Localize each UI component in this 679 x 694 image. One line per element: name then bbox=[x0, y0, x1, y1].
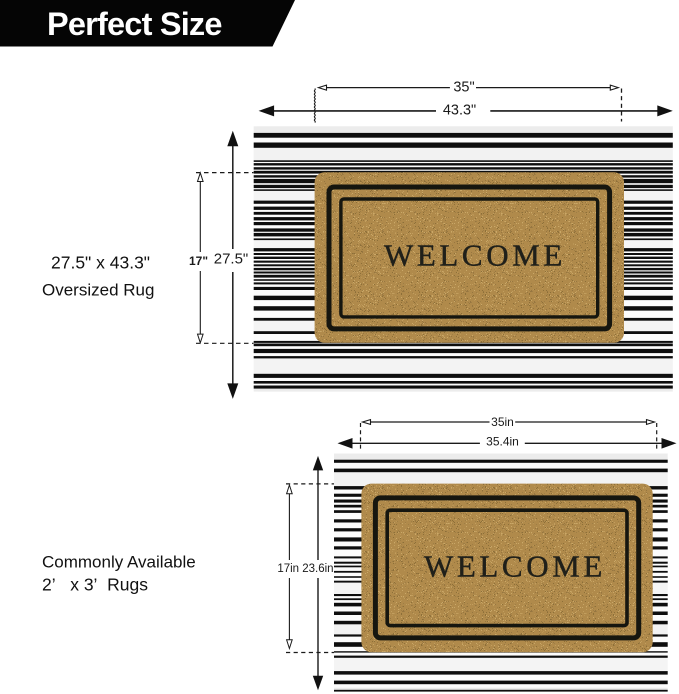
svg-text:17": 17" bbox=[189, 254, 208, 268]
svg-text:27.5" x 43.3": 27.5" x 43.3" bbox=[51, 253, 150, 273]
svg-text:35.4in: 35.4in bbox=[486, 435, 519, 449]
svg-text:WELCOME: WELCOME bbox=[384, 238, 566, 273]
svg-text:WELCOME: WELCOME bbox=[424, 548, 606, 583]
svg-text:Perfect Size: Perfect Size bbox=[47, 6, 222, 42]
svg-text:2’ x 3’ Rugs: 2’ x 3’ Rugs bbox=[42, 575, 148, 595]
svg-text:43.3": 43.3" bbox=[443, 102, 476, 118]
svg-text:35": 35" bbox=[453, 80, 474, 96]
svg-text:Oversized Rug: Oversized Rug bbox=[42, 281, 154, 300]
svg-text:23.6in: 23.6in bbox=[302, 563, 333, 575]
svg-text:27.5": 27.5" bbox=[214, 251, 249, 268]
svg-text:35in: 35in bbox=[491, 415, 514, 429]
svg-text:17in: 17in bbox=[277, 563, 299, 575]
svg-text:Commonly Available: Commonly Available bbox=[42, 553, 196, 572]
